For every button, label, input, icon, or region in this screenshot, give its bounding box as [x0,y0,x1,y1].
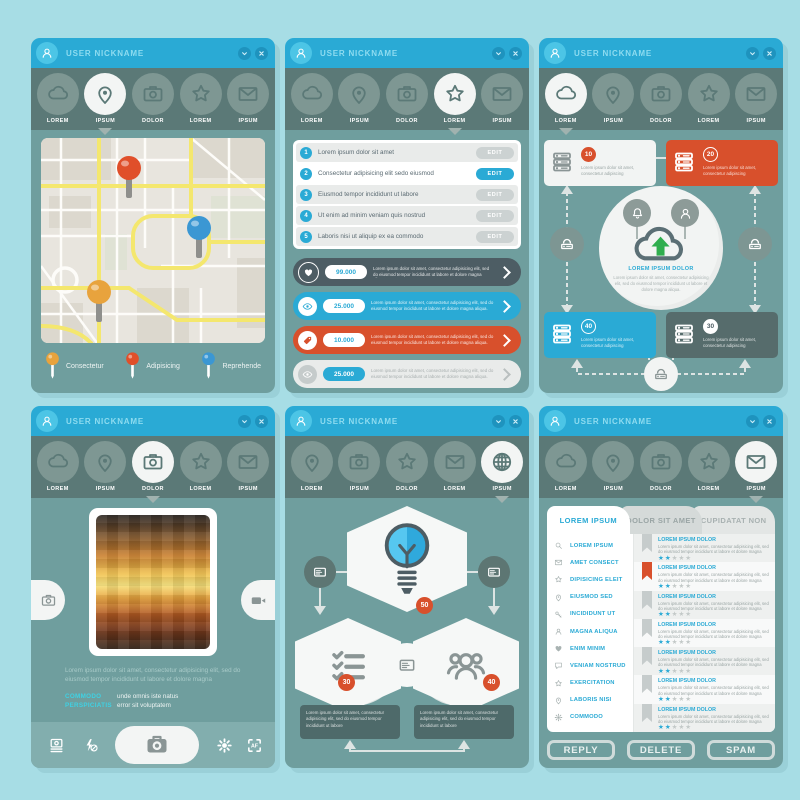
map-graphic [41,138,265,343]
legend-label: Adipisicing [146,363,179,370]
nav-item[interactable]: DOLOR [637,73,685,130]
stat-icon [303,267,314,278]
nav-item[interactable]: DOLOR [383,73,431,130]
camera-toolbar [31,722,275,768]
sidebar-item[interactable]: ENIM MINIM [547,640,633,657]
person-icon [548,46,562,60]
nav-label: LOREM [34,118,82,124]
server-card: 40 Lorem ipsum dolor sit amet, consectet… [544,312,656,358]
mail-card: LOREM IPSUM AMET CONSECT DIPISICING ELEI… [547,534,775,732]
rating-stars[interactable]: ★★★★★ [658,584,769,591]
sunset-photo[interactable] [96,515,210,649]
nav-item[interactable]: DOLOR [383,441,431,498]
tab[interactable]: CUPIDATAT NON [692,506,775,534]
sidebar-item[interactable]: INCIDIDUNT UT [547,606,633,623]
nav-label: IPSUM [82,118,130,124]
router-circle [550,227,584,261]
legend-item: Adipisicing [125,352,179,380]
percent-badge: 50 [416,597,433,614]
sidebar-item-icon [554,644,563,653]
chevron-right-icon[interactable] [498,334,511,347]
user-nickname: USER NICKNAME [574,417,652,426]
nav-item[interactable]: LOREM [288,441,336,498]
shutter-icon [145,733,169,757]
nav-item[interactable]: LOREM [177,441,225,498]
nav-item[interactable]: IPSUM [732,441,780,498]
note-circle [478,556,510,588]
video-icon [250,592,267,609]
mail-sidebar: LOREM IPSUM AMET CONSECT DIPISICING ELEI… [547,534,634,732]
nav-bar: LOREM IPSUM DOLOR LOREM [285,436,529,498]
nav-icon [236,82,260,106]
mail-tabs: LOREM IPSUM DOLOR SIT AMET CUPIDATAT NON [547,506,775,534]
nav-item[interactable]: LOREM [34,73,82,130]
entry-title: LOREM IPSUM DOLOR [658,678,769,684]
panel-header: USER NICKNAME [31,406,275,436]
sidebar-item-icon [554,661,563,670]
close-button[interactable] [509,415,522,428]
person-icon [40,46,54,60]
nav-label: DOLOR [637,118,685,124]
collapse-button[interactable] [238,47,251,60]
stat-row[interactable]: 25.000 Lorem ipsum dolor sit amet, conse… [293,292,521,320]
entry-title: LOREM IPSUM DOLOR [658,622,769,628]
legend-pin-icon [125,352,140,380]
mail-body: LOREM IPSUM DOLOR SIT AMET CUPIDATAT NON… [539,498,783,768]
nav-bar: LOREM IPSUM DOLOR LOREM [31,436,275,498]
hub-title: LOREM IPSUM DOLOR [599,266,723,272]
close-button[interactable] [255,47,268,60]
stat-value: 10.000 [323,333,365,347]
nav-item[interactable]: IPSUM [224,73,272,130]
nav-icon [93,82,117,106]
nav-item[interactable]: LOREM [542,441,590,498]
entry-body: Lorem ipsum dolor sit amet, consectetur … [658,657,769,668]
avatar[interactable] [544,42,566,64]
nav-item[interactable]: IPSUM [732,73,780,130]
user-nickname: USER NICKNAME [320,417,398,426]
sidebar-item-label: LABORIS NISI [570,697,611,703]
collapse-button[interactable] [746,415,759,428]
sidebar-item-label: LOREM IPSUM [570,543,613,549]
chevron-right-icon[interactable] [498,300,511,313]
stat-row[interactable]: 10.000 Lorem ipsum dolor sit amet, conse… [293,326,521,354]
panel-mail: USER NICKNAME LOREM IPSUM DOLOR [539,406,783,768]
cloud-hub: LOREM IPSUM DOLOR Lorem ipsum dolor sit … [599,186,723,310]
nav-item[interactable]: DOLOR [637,441,685,498]
rating-stars[interactable]: ★★★★★ [658,556,769,563]
item-number: 5 [300,231,312,243]
nav-label: IPSUM [478,486,526,492]
meta-label: COMMODO [65,692,117,701]
close-button[interactable] [509,47,522,60]
nav-label: DOLOR [383,486,431,492]
edit-button[interactable]: EDIT [476,210,514,222]
burst-mode-button[interactable] [48,737,65,754]
nav-icon [744,450,768,474]
edit-button[interactable]: EDIT [476,231,514,243]
panel-hexagons: USER NICKNAME LOREM IPSUM DOLOR [285,406,529,768]
nav-item[interactable]: IPSUM [590,441,638,498]
stat-icon-circle [298,297,317,316]
panel-network: USER NICKNAME LOREM IPSUM DOLOR [539,38,783,393]
rating-stars[interactable]: ★★★★★ [658,612,769,619]
nav-item[interactable]: IPSUM [590,73,638,130]
item-text: Laboris nisi ut aliquip ex ea commodo [318,233,476,240]
rating-stars[interactable]: ★★★★★ [658,669,769,676]
photo-frame [89,508,217,656]
nav-label: LOREM [542,118,590,124]
close-icon [511,49,520,58]
user-nickname: USER NICKNAME [320,49,398,58]
sidebar-item-icon [554,713,563,722]
stat-description: Lorem ipsum dolor sit amet, consectetur … [371,368,494,379]
nav-item[interactable]: LOREM [431,73,479,130]
sidebar-item[interactable]: EIUSMOD SED [547,589,633,606]
sidebar-item[interactable]: LOREM IPSUM [547,537,633,554]
entry-title: LOREM IPSUM DOLOR [658,594,769,600]
map[interactable] [41,138,265,343]
meta-label: PERSPICIATIS [65,701,117,710]
nav-label: IPSUM [590,118,638,124]
stat-row[interactable]: 25.000 Lorem ipsum dolor sit amet, conse… [293,360,521,388]
list-item[interactable]: 2 Consectetur adipisicing elit sedo eius… [296,164,518,183]
sidebar-item-label: EIUSMOD SED [570,594,613,600]
router-circle [644,357,678,391]
edit-button[interactable]: EDIT [476,168,514,180]
sidebar-item-icon [554,696,563,705]
nav-label: LOREM [177,118,225,124]
bookmark-icon [642,591,652,609]
tab-label: LOREM IPSUM [560,516,617,525]
count-badge: 10 [581,147,596,162]
nav-icon [93,450,117,474]
close-icon [257,49,266,58]
sidebar-item-label: COMMODO [570,714,603,720]
nav-icon [744,82,768,106]
user-icon [678,206,693,221]
item-text: Eiusmod tempor incididunt ut labore [318,191,476,198]
nav-item[interactable]: IPSUM [336,441,384,498]
server-icon [550,150,574,174]
sidebar-item-icon [554,610,563,619]
hex-body: 50 30 40 Lorem ipsum dolor sit amet, con… [285,498,529,768]
nav-bar: LOREM IPSUM DOLOR LOREM [31,68,275,130]
sidebar-item[interactable]: VENIAM NOSTRUD [547,657,633,674]
collapse-button[interactable] [746,47,759,60]
avatar[interactable] [544,410,566,432]
close-button[interactable] [763,415,776,428]
nav-item[interactable]: IPSUM [82,73,130,130]
meta-value: unde omnis iste natus [117,693,178,700]
edit-button[interactable]: EDIT [476,189,514,201]
card-text: Lorem ipsum dolor sit amet, consectetur … [581,337,650,349]
count-badge: 30 [703,319,718,334]
sidebar-item-label: DIPISICING ELEIT [570,577,622,583]
avatar[interactable] [36,42,58,64]
mail-entry[interactable]: LOREM IPSUM DOLOR Lorem ipsum dolor sit … [634,619,775,647]
nav-item[interactable]: LOREM [542,73,590,130]
nav-item[interactable]: IPSUM [224,441,272,498]
nav-icon [347,82,371,106]
chevron-down-icon [240,417,249,426]
nav-label: LOREM [288,486,336,492]
item-number: 1 [300,147,312,159]
mail-entry[interactable]: LOREM IPSUM DOLOR Lorem ipsum dolor sit … [634,591,775,619]
reply-button[interactable]: REPLY [547,740,615,760]
card-text: Lorem ipsum dolor sit amet, consectetur … [703,337,772,349]
nav-item[interactable]: LOREM [288,73,336,130]
server-card: 10 Lorem ipsum dolor sit amet, consectet… [544,140,656,186]
nav-icon [697,450,721,474]
legend-label: Consectetur [66,363,104,370]
item-text: Lorem ipsum dolor sit amet [318,149,476,156]
nav-item[interactable]: LOREM [177,73,225,130]
chevron-down-icon [494,49,503,58]
bookmark-icon [642,704,652,722]
nav-item[interactable]: LOREM [34,441,82,498]
entry-body: Lorem ipsum dolor sit amet, consectetur … [658,629,769,640]
router-circle [738,227,772,261]
nav-icon [347,450,371,474]
delete-button[interactable]: DELETE [627,740,695,760]
nav-icon [490,82,514,106]
collapse-button[interactable] [238,415,251,428]
legend-pin-icon [201,352,216,380]
nav-icon [46,82,70,106]
sidebar-item-icon [554,679,563,688]
people-icon [445,644,487,686]
mail-entry[interactable]: LOREM IPSUM DOLOR Lorem ipsum dolor sit … [634,647,775,675]
cloud-upload-icon [632,220,690,264]
tab-label: CUPIDATAT NON [701,516,767,525]
nav-icon [697,82,721,106]
nav-bar: LOREM IPSUM DOLOR LOREM [539,436,783,498]
nav-label: IPSUM [336,486,384,492]
nav-icon [490,450,514,474]
edit-button[interactable]: EDIT [476,147,514,159]
message-icon [397,655,417,675]
list-item[interactable]: 3 Eiusmod tempor incididunt ut labore ED… [296,185,518,204]
sidebar-item[interactable]: DIPISICING ELEIT [547,571,633,588]
user-nickname: USER NICKNAME [66,417,144,426]
user-nickname: USER NICKNAME [574,49,652,58]
chevron-down-icon [748,49,757,58]
sidebar-item-label: MAGNA ALIQUA [570,629,618,635]
nav-item[interactable]: LOREM [685,441,733,498]
item-text: Ut enim ad minim veniam quis nostrud [318,212,476,219]
nav-icon [236,450,260,474]
nav-item[interactable]: IPSUM [82,441,130,498]
stat-icon-circle [298,262,319,283]
stat-description: Lorem ipsum dolor sit amet, consectetur … [373,266,494,278]
panel-photo: USER NICKNAME LOREM IPSUM DOLOR [31,406,275,768]
nav-item[interactable]: LOREM [685,73,733,130]
meta-row: COMMODOunde omnis iste natus [65,692,178,701]
entry-body: Lorem ipsum dolor sit amet, consectetur … [658,714,769,725]
server-card: 30 Lorem ipsum dolor sit amet, consectet… [666,312,778,358]
sidebar-item[interactable]: MAGNA ALIQUA [547,623,633,640]
sidebar-item-label: INCIDIDUNT UT [570,611,615,617]
map-legend: Consectetur Adipisicing Reprehende [31,352,275,380]
entry-body: Lorem ipsum dolor sit amet, consectetur … [658,572,769,583]
card-text: Lorem ipsum dolor sit amet, consectetur … [581,165,650,177]
bookmark-icon [642,675,652,693]
sidebar-item[interactable]: LABORIS NISI [547,692,633,709]
stat-icon-circle [298,365,317,384]
avatar[interactable] [36,410,58,432]
nav-label: IPSUM [224,486,272,492]
nav-item[interactable]: DOLOR [129,73,177,130]
user-nickname: USER NICKNAME [66,49,144,58]
collapse-button[interactable] [492,47,505,60]
nav-label: DOLOR [129,118,177,124]
nav-label: LOREM [542,486,590,492]
sidebar-item[interactable]: COMMODO [547,709,633,726]
stat-value: 25.000 [323,367,365,381]
nav-icon [46,450,70,474]
stat-icon [302,335,313,346]
meta-value: error sit voluptatem [117,702,171,709]
entry-body: Lorem ipsum dolor sit amet, consectetur … [658,601,769,612]
af-frame-icon [246,737,263,754]
panel-header: USER NICKNAME [539,38,783,68]
nav-icon [141,82,165,106]
nav-label: LOREM [431,486,479,492]
nav-label: DOLOR [637,486,685,492]
mail-entry[interactable]: LOREM IPSUM DOLOR Lorem ipsum dolor sit … [634,562,775,590]
sidebar-item[interactable]: EXERCITATION [547,675,633,692]
sidebar-item[interactable]: AMET CONSECT [547,554,633,571]
stat-description: Lorem ipsum dolor sit amet, consectetur … [371,334,494,345]
photo-body: Lorem ipsum dolor sit amet, consectetur … [31,498,275,768]
legend-pin-icon [45,352,60,380]
avatar[interactable] [290,42,312,64]
nav-bar: LOREM IPSUM DOLOR LOREM [285,68,529,130]
nav-label: IPSUM [336,118,384,124]
camera-icon [40,592,57,609]
percent-badge: 40 [483,674,500,691]
list-item[interactable]: 5 Laboris nisi ut aliquip ex ea commodo … [296,227,518,246]
nav-icon [601,82,625,106]
lightbulb-icon [378,520,436,598]
nav-icon [601,450,625,474]
legend-label: Reprehende [222,363,261,370]
nav-item[interactable]: IPSUM [478,441,526,498]
bookmark-icon [642,534,652,552]
bookmark-icon [642,647,652,665]
nav-label: LOREM [685,486,733,492]
nav-label: DOLOR [383,118,431,124]
list-body: 1 Lorem ipsum dolor sit amet EDIT 2 Cons… [285,130,529,393]
autofocus-button[interactable] [246,737,263,754]
photo-mode-tab[interactable] [31,580,65,620]
item-number: 3 [300,189,312,201]
stat-description: Lorem ipsum dolor sit amet, consectetur … [371,300,494,311]
settings-button[interactable] [216,737,233,754]
entry-title: LOREM IPSUM DOLOR [658,707,769,713]
person-icon [548,414,562,428]
list-item[interactable]: 4 Ut enim ad minim veniam quis nostrud E… [296,206,518,225]
tab[interactable]: DOLOR SIT AMET [620,506,703,534]
nav-item[interactable]: DOLOR [129,441,177,498]
collapse-button[interactable] [492,415,505,428]
mail-entry[interactable]: LOREM IPSUM DOLOR Lorem ipsum dolor sit … [634,534,775,562]
rating-stars[interactable]: ★★★★★ [658,640,769,647]
flash-off-button[interactable] [82,737,99,754]
nav-icon [443,82,467,106]
photo-meta: COMMODOunde omnis iste natus PERSPICIATI… [65,692,178,711]
tab-label: DOLOR SIT AMET [626,516,696,525]
nav-label: LOREM [177,486,225,492]
mail-actions: REPLY DELETE SPAM [547,740,775,760]
item-number: 2 [300,168,312,180]
video-mode-tab[interactable] [241,580,275,620]
chevron-right-icon[interactable] [498,368,511,381]
stat-value: 25.000 [323,299,365,313]
nav-item[interactable]: IPSUM [478,73,526,130]
nav-label: IPSUM [732,486,780,492]
chevron-down-icon [240,49,249,58]
nav-label: DOLOR [129,486,177,492]
nav-label: LOREM [34,486,82,492]
rating-stars[interactable]: ★★★★★ [658,725,769,732]
panel-header: USER NICKNAME [31,38,275,68]
nav-icon [300,450,324,474]
tab[interactable]: LOREM IPSUM [547,506,630,534]
nav-icon [649,450,673,474]
gear-icon [216,737,233,754]
sidebar-item-icon [554,593,563,602]
count-badge: 20 [703,147,718,162]
shutter-button[interactable] [115,726,199,764]
spam-button[interactable]: SPAM [707,740,775,760]
sidebar-item-icon [554,627,563,636]
nav-bar: LOREM IPSUM DOLOR LOREM [539,68,783,130]
entry-title: LOREM IPSUM DOLOR [658,565,769,571]
chevron-down-icon [748,417,757,426]
nav-item[interactable]: LOREM [431,441,479,498]
close-button[interactable] [763,47,776,60]
panel-header: USER NICKNAME [285,38,529,68]
nav-icon [189,82,213,106]
sidebar-item-label: EXERCITATION [570,680,615,686]
panel-header: USER NICKNAME [539,406,783,436]
sidebar-item-label: VENIAM NOSTRUD [570,663,626,669]
rating-stars[interactable]: ★★★★★ [658,697,769,704]
mail-entry[interactable]: LOREM IPSUM DOLOR Lorem ipsum dolor sit … [634,704,775,732]
server-icon [672,150,696,174]
item-text: Consectetur adipisicing elit sedo eiusmo… [318,170,476,177]
router-icon [558,235,576,253]
list-item[interactable]: 1 Lorem ipsum dolor sit amet EDIT [296,143,518,162]
sidebar-item-label: ENIM MINIM [570,646,605,652]
mail-entry[interactable]: LOREM IPSUM DOLOR Lorem ipsum dolor sit … [634,675,775,703]
nav-icon [443,450,467,474]
nav-label: IPSUM [82,486,130,492]
ui-kit-canvas: USER NICKNAME LOREM IPSUM DOLOR [0,0,800,800]
legend-item: Reprehende [201,352,261,380]
close-button[interactable] [255,415,268,428]
avatar[interactable] [290,410,312,432]
stat-value: 99.000 [325,265,367,279]
stat-row[interactable]: 99.000 Lorem ipsum dolor sit amet, conse… [293,258,521,286]
flash-off-icon [82,737,99,754]
entry-body: Lorem ipsum dolor sit amet, consectetur … [658,544,769,555]
close-icon [511,417,520,426]
nav-item[interactable]: IPSUM [336,73,384,130]
chevron-right-icon[interactable] [498,266,511,279]
